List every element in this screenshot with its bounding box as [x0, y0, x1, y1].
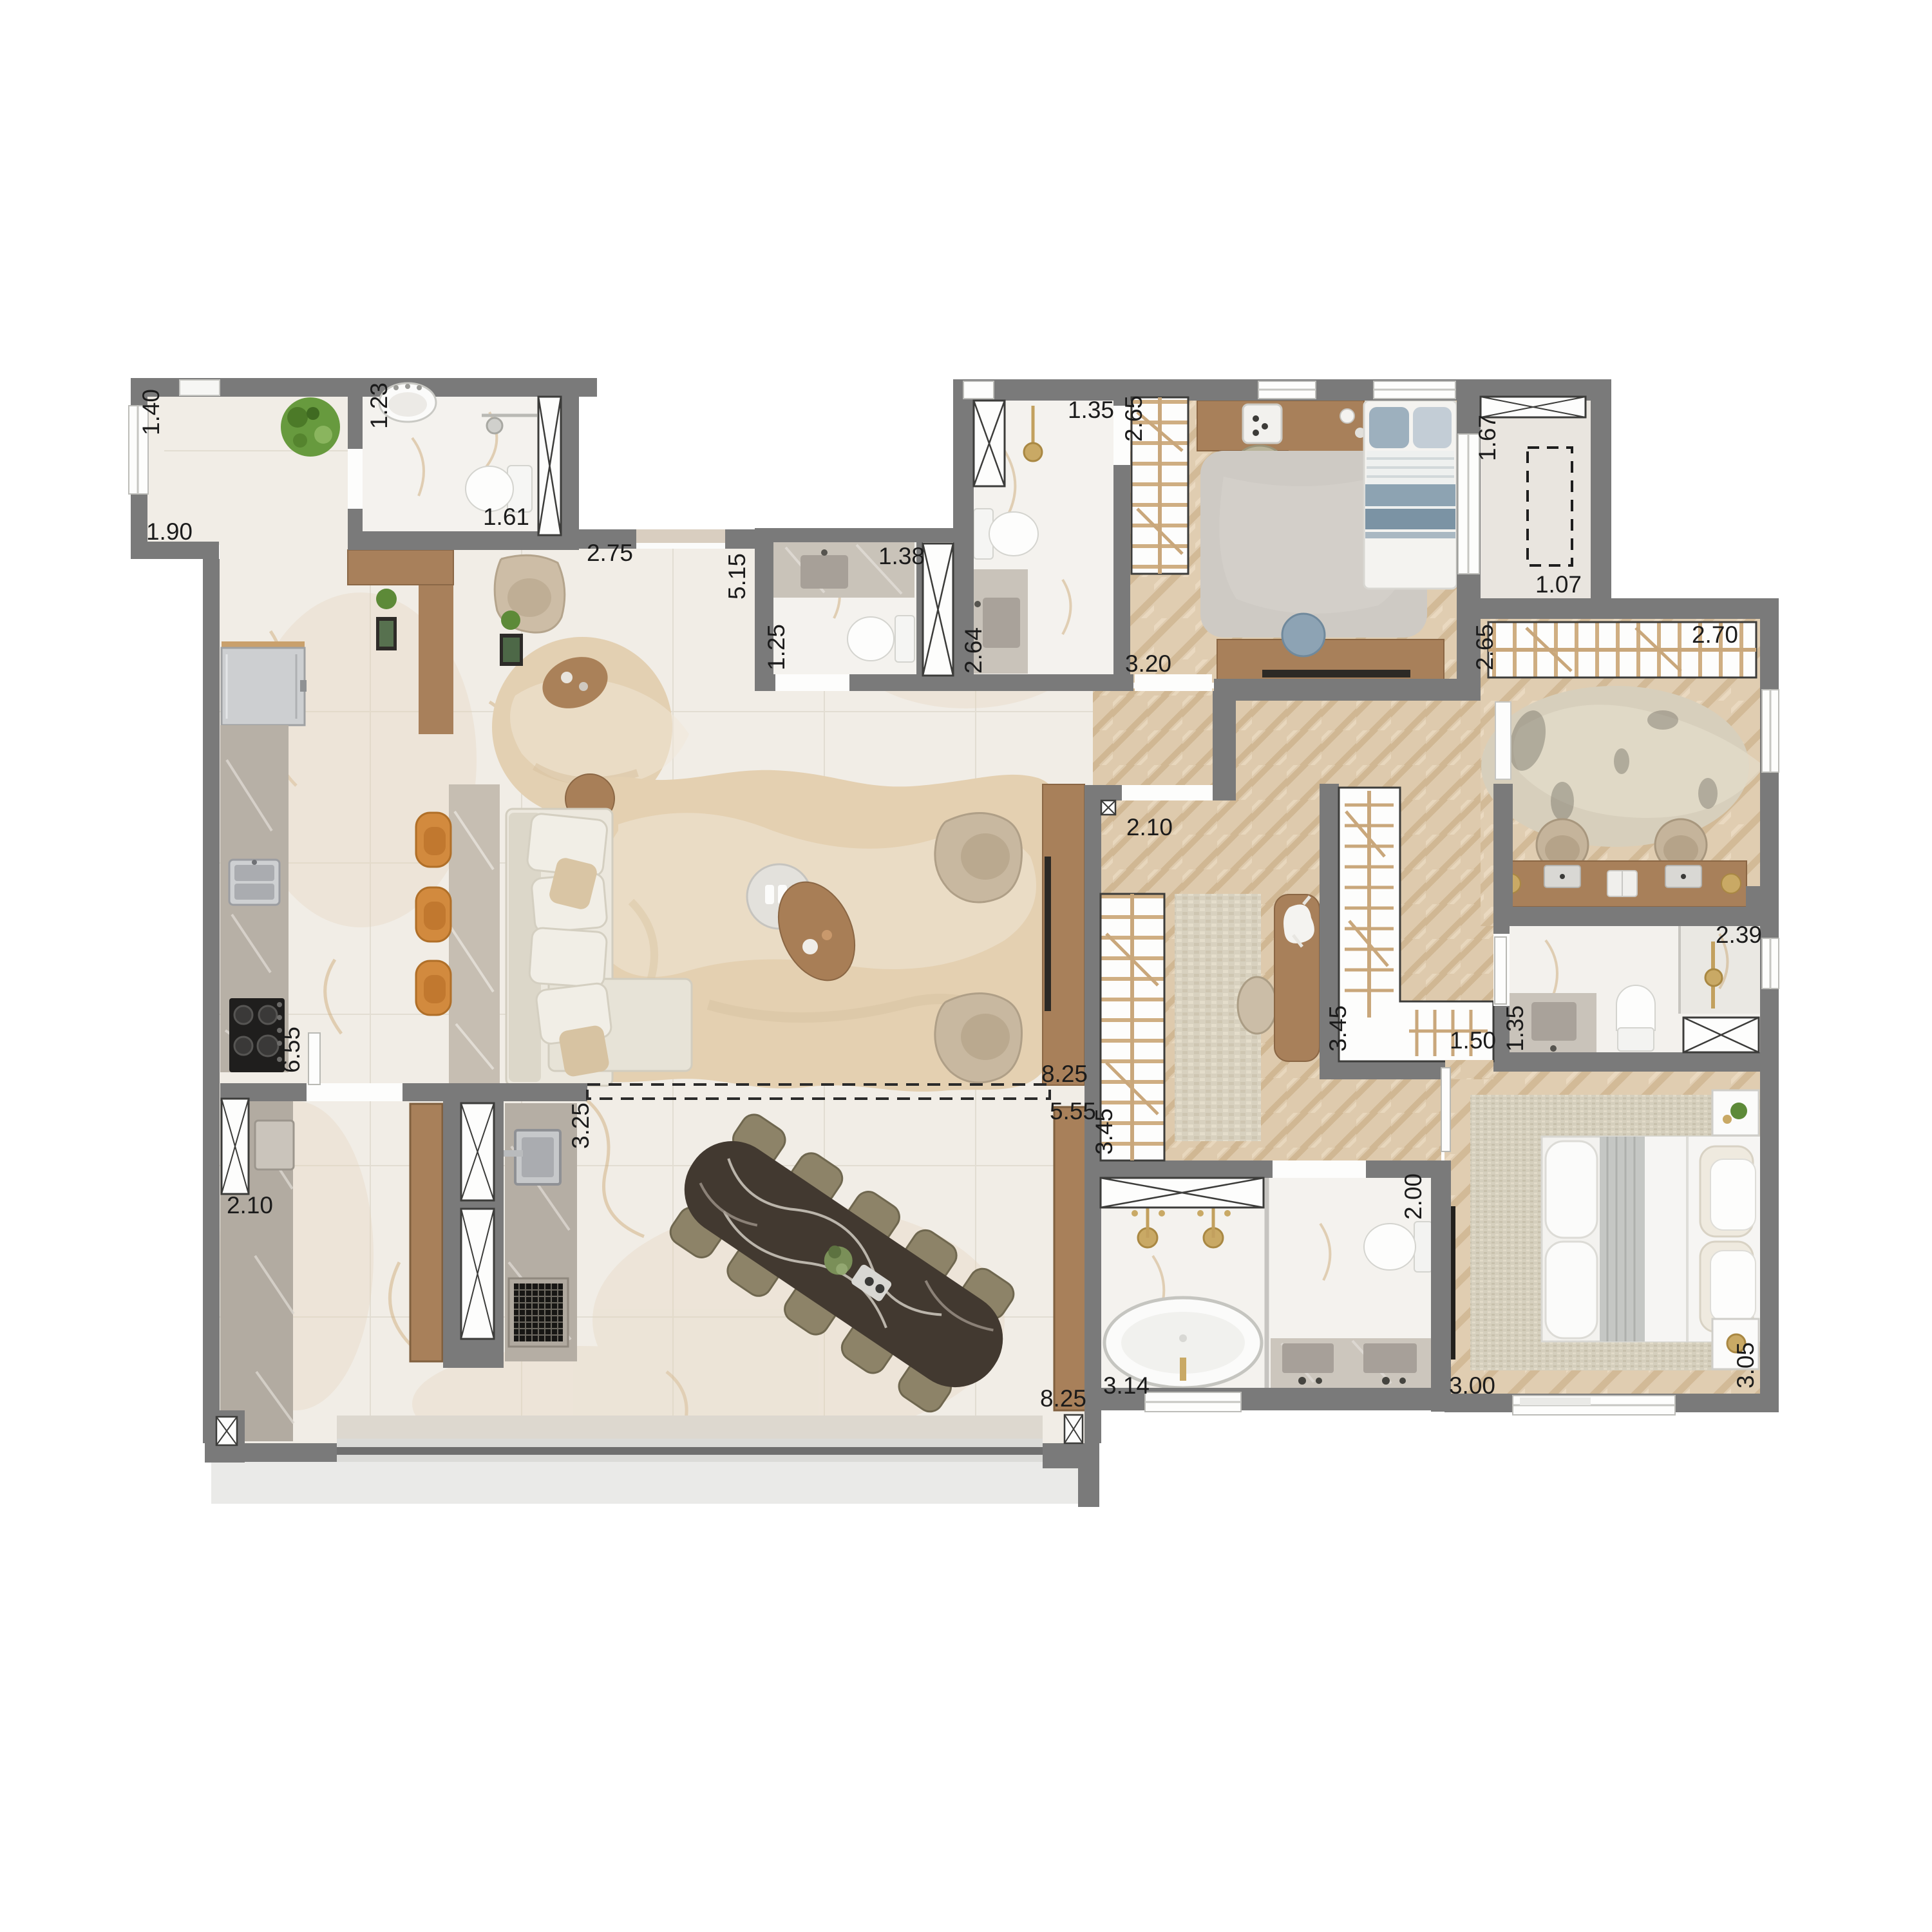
svg-text:2.65: 2.65	[1121, 395, 1147, 442]
svg-text:3.25: 3.25	[567, 1103, 594, 1149]
svg-text:1.40: 1.40	[138, 389, 164, 435]
svg-text:8.25: 8.25	[1041, 1061, 1088, 1087]
svg-text:8.25: 8.25	[1040, 1385, 1086, 1412]
svg-text:2.00: 2.00	[1400, 1173, 1426, 1220]
svg-text:3.05: 3.05	[1732, 1342, 1759, 1388]
svg-text:1.25: 1.25	[763, 624, 790, 670]
svg-text:3.45: 3.45	[1091, 1108, 1117, 1155]
svg-text:2.10: 2.10	[1126, 814, 1173, 840]
svg-text:1.35: 1.35	[1502, 1005, 1528, 1052]
svg-text:2.70: 2.70	[1692, 621, 1738, 648]
svg-text:3.20: 3.20	[1125, 650, 1171, 677]
svg-text:2.39: 2.39	[1716, 922, 1762, 948]
svg-text:3.45: 3.45	[1325, 1005, 1351, 1052]
svg-text:3.00: 3.00	[1449, 1372, 1495, 1399]
svg-text:1.07: 1.07	[1535, 571, 1582, 598]
svg-text:3.14: 3.14	[1103, 1372, 1150, 1399]
svg-text:1.90: 1.90	[146, 518, 193, 545]
svg-text:1.23: 1.23	[366, 383, 392, 429]
svg-text:1.61: 1.61	[483, 504, 529, 530]
svg-text:2.75: 2.75	[587, 540, 633, 566]
svg-text:1.50: 1.50	[1450, 1027, 1496, 1054]
svg-text:1.38: 1.38	[878, 543, 925, 569]
svg-text:2.65: 2.65	[1472, 624, 1498, 670]
svg-text:5.55: 5.55	[1050, 1098, 1096, 1124]
svg-text:5.15: 5.15	[724, 553, 750, 600]
svg-text:1.35: 1.35	[1068, 397, 1114, 423]
svg-text:6.55: 6.55	[278, 1027, 305, 1073]
svg-text:2.10: 2.10	[227, 1192, 273, 1218]
svg-text:2.64: 2.64	[960, 627, 987, 674]
svg-text:1.67: 1.67	[1474, 415, 1501, 461]
